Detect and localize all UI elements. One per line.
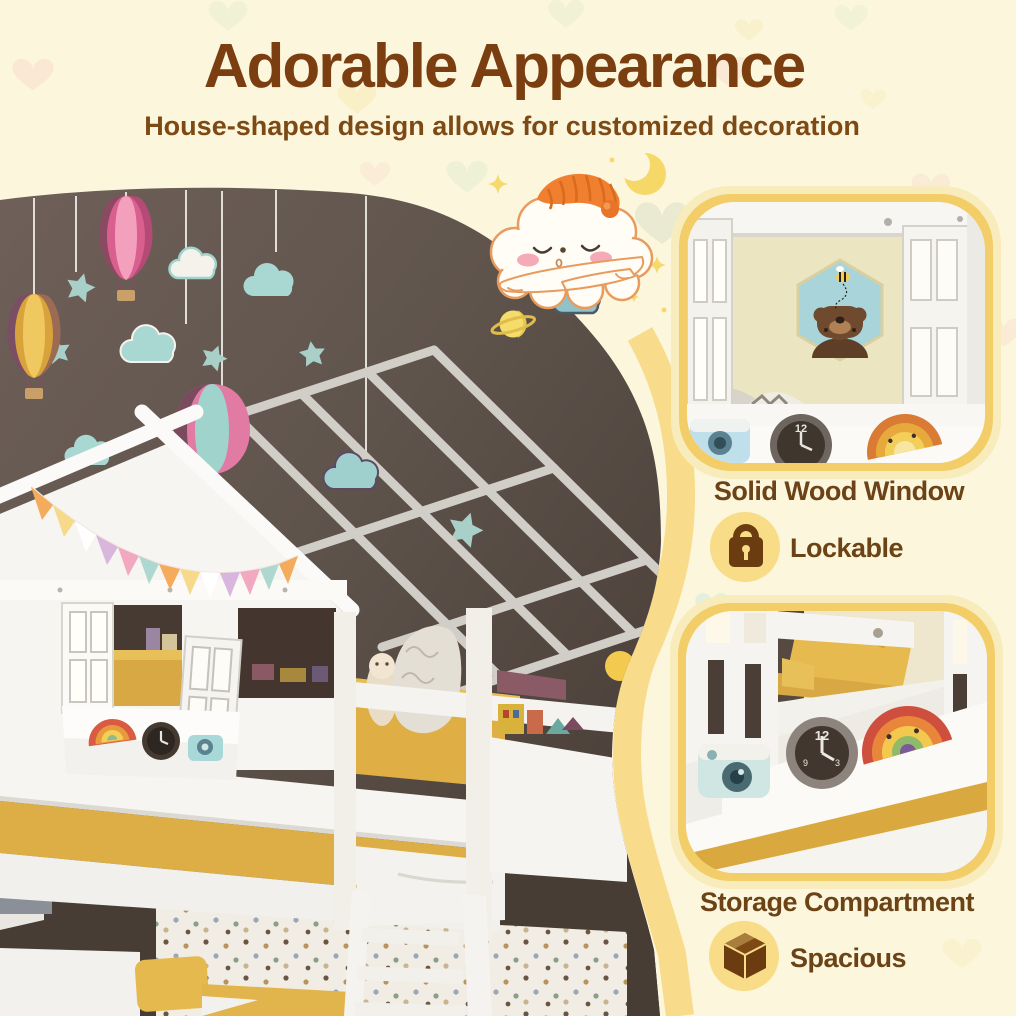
svg-text:Adorable Appearance: Adorable Appearance (204, 32, 805, 101)
svg-text:9: 9 (803, 758, 808, 768)
svg-text:Solid Wood Window: Solid Wood Window (714, 476, 966, 506)
svg-text:Storage Compartment: Storage Compartment (700, 887, 975, 917)
svg-text:Spacious: Spacious (790, 943, 906, 973)
svg-text:House-shaped design allows for: House-shaped design allows for customize… (144, 111, 860, 141)
svg-text:3: 3 (835, 758, 840, 768)
svg-text:Lockable: Lockable (790, 533, 904, 563)
